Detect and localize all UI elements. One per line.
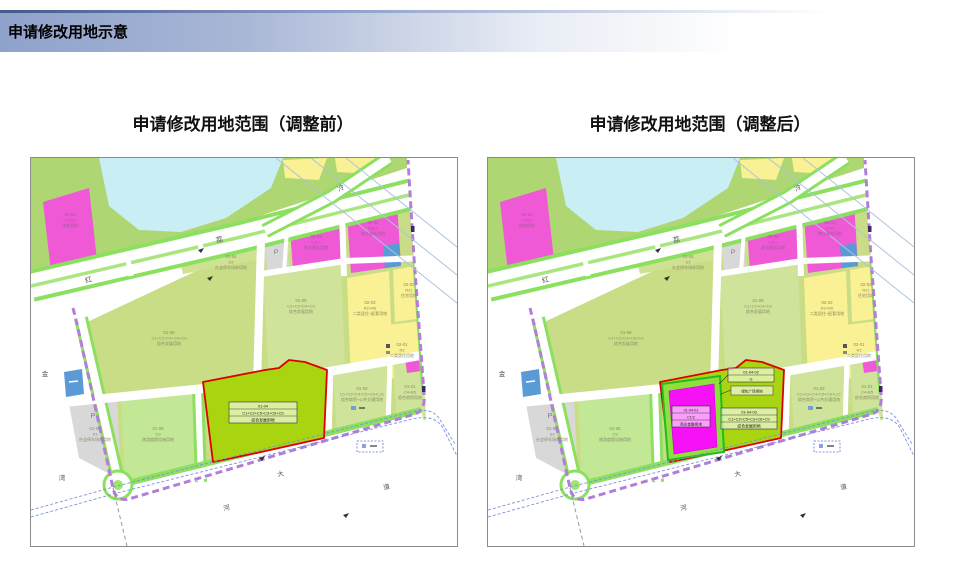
- parcel-label-01-09: 01-09: [753, 298, 765, 303]
- parcel-label-03-04: 03-04: [226, 254, 238, 259]
- blue-parcel-mark: [526, 381, 535, 382]
- minor-road-v0b: [342, 214, 344, 276]
- road-name-char: 湾: [516, 473, 523, 482]
- parcel-label-01-09: 综合发展用地: [746, 308, 770, 314]
- parcel-label-01-08: C1+C2+C4+C8+C9: [609, 335, 645, 340]
- parcel-label-02-01: 二类居住用地: [847, 352, 871, 358]
- parcel-label-01-03: 01-03: [814, 386, 826, 391]
- parcel-label-03-03: 03-03: [768, 234, 780, 239]
- minor-road-v0: [257, 240, 261, 386]
- parcel-label-01-09: C1+C2+C4+C9: [287, 303, 315, 308]
- focus-green-label-box-row: G: [749, 376, 752, 381]
- parcel-label-01-03: C1+C2+C4+C5+C9+L21: [797, 391, 842, 396]
- parcel-label-01-08: 01-08: [164, 330, 176, 335]
- parcel-label-03-02: 商业服务用地: [361, 230, 385, 236]
- parcel-label-02-02: R21: [405, 287, 413, 292]
- minor-road-v0: [714, 240, 718, 386]
- parcel-label-01-09: C1+C2+C4+C9: [744, 303, 772, 308]
- parking-letter-north: P: [274, 249, 278, 256]
- focus-green-label-box-row: 01-04-02: [743, 369, 759, 374]
- parking-letter-01-06: P: [91, 413, 96, 420]
- parcel-label-02-02: 02-02: [861, 282, 873, 287]
- parcel-label-01-06: 01-06: [547, 426, 559, 431]
- pylon-marker: [879, 386, 883, 392]
- parcel-label-01-03: C1+C2+C4+C5+C9+L21: [340, 391, 385, 396]
- facility-icon: [351, 406, 356, 410]
- parcel-label-03-02: 商业服务用地: [818, 230, 842, 236]
- parcel-label-03-03: C/IC1: [311, 239, 322, 244]
- parcel-label-01-08: 01-08: [621, 330, 633, 335]
- road-name-char: 金: [42, 369, 49, 378]
- roundabout-island: [570, 480, 580, 490]
- facility-icon: [808, 406, 813, 410]
- parcel-label-01-03: 综合商贸+公共交通用地: [798, 396, 840, 402]
- parcel-label-01-01: 综合商贸用地: [855, 394, 879, 400]
- parcel-label-02-02: R21: [862, 287, 870, 292]
- parcel-label-01-05: 01-05: [610, 426, 622, 431]
- facility-icon: [843, 344, 847, 348]
- parcel-label-01-08: 综合发展用地: [157, 340, 181, 346]
- page-title: 申请修改用地示意: [0, 13, 872, 52]
- parcel-label-04-02: C/IC2: [522, 217, 533, 222]
- parcel-label-01-05: C9: [612, 431, 618, 436]
- parcel-label-04-02: 04-02: [65, 212, 77, 217]
- pylon-marker: [868, 226, 872, 232]
- focus-green-callout-text: 绿化广场用地: [741, 389, 763, 394]
- parcel-label-02-03: 二类居住+配套用地: [353, 310, 387, 316]
- parcel-label-01-06: 01-06: [90, 426, 102, 431]
- figure-title-after: 申请修改用地范围（调整后）: [487, 110, 913, 157]
- figure-after: 申请修改用地范围（调整后） 01-04-01C1/2商业金融用地01-04-03…: [487, 110, 913, 547]
- parcel-label-03-02: C/IC1: [368, 225, 379, 230]
- focus-main-label-box-row: 01-04-03: [741, 409, 757, 414]
- parcel-label-01-05: C9: [155, 431, 161, 436]
- focus-magenta-label-box-row: C1/2: [687, 415, 695, 419]
- parcel-label-02-01: 02-01: [854, 342, 866, 347]
- focus-label-box-before: 01-04C1+C2+C5+C3+C6+C9综合发展用地: [229, 402, 297, 423]
- pylon-marker: [422, 386, 426, 392]
- parcel-label-03-04: 社会停车场库用地: [672, 264, 704, 270]
- parcel-blue-west: [521, 369, 541, 397]
- focus-label-box-before-row: 01-04: [258, 403, 269, 408]
- blue-parcel-mark: [69, 381, 78, 382]
- facility-icon: [386, 344, 390, 348]
- focus-main-label-box-row: 综合发展用地: [737, 423, 760, 428]
- parcel-label-03-03: C/IC1: [768, 239, 779, 244]
- parcel-label-02-03: R2+R6: [821, 305, 834, 310]
- parcel-label-01-08: 综合发展用地: [614, 340, 638, 346]
- parcel-label-01-06: S3: [550, 431, 556, 436]
- parcel-label-01-06: 社会停车场库用地: [79, 436, 111, 442]
- parcel-label-01-09: 综合发展用地: [289, 308, 313, 314]
- figure-before: 申请修改用地范围（调整前） 01-04C1+C2+C5+C3+C6+C9综合发展…: [30, 110, 456, 547]
- parcel-label-01-01: C4+B5: [404, 389, 417, 394]
- parcel-label-02-03: 02-03: [822, 300, 834, 305]
- parcel-label-01-09: 01-09: [296, 298, 308, 303]
- map-frame-before: 01-04C1+C2+C5+C3+C6+C9综合发展用地04-02C/IC2体育…: [30, 157, 458, 547]
- parcel-label-01-08: C1+C2+C4+C8+C9: [152, 335, 188, 340]
- pylon-marker: [411, 226, 415, 232]
- focus-label-box-before-row: 综合发展用地: [251, 417, 274, 422]
- parcel-label-03-04: 社会停车场库用地: [215, 264, 247, 270]
- header-bar: 申请修改用地示意: [0, 13, 872, 52]
- planning-map-after: 01-04-01C1/2商业金融用地01-04-03C1+C2+C5+C3+C6…: [488, 158, 914, 546]
- parcel-label-01-05: 01-05: [153, 426, 165, 431]
- roundabout-island: [113, 480, 123, 490]
- map-frame-after: 01-04-01C1/2商业金融用地01-04-03C1+C2+C5+C3+C6…: [487, 157, 915, 547]
- parcel-label-01-06: S3: [93, 431, 99, 436]
- parcel-label-03-04: S3: [229, 259, 235, 264]
- focus-main-label-box-row: C1+C2+C5+C3+C6+C9: [728, 416, 769, 421]
- parcel-label-01-03: 01-03: [357, 386, 369, 391]
- minor-road-v2: [785, 368, 787, 440]
- parcel-label-04-02: 体育用地: [519, 222, 535, 228]
- focus-magenta-label-box-row: 01-04-01: [684, 408, 699, 412]
- parcel-label-03-02: 03-02: [368, 220, 380, 225]
- parcel-label-03-03: 商业服务用地: [761, 244, 785, 250]
- parcel-blue-west: [64, 369, 84, 397]
- focus-magenta-label-box: 01-04-01C1/2商业金融用地: [672, 406, 710, 427]
- parcel-label-03-03: 商业服务用地: [304, 244, 328, 250]
- parcel-label-01-01: 01-01: [405, 384, 417, 389]
- parcel-label-03-04: S3: [686, 259, 692, 264]
- parcel-label-03-04: 03-04: [683, 254, 695, 259]
- parcel-label-04-02: 04-02: [522, 212, 534, 217]
- parcel-label-02-03: 02-03: [365, 300, 377, 305]
- minor-road-v0b: [799, 214, 801, 276]
- parking-letter-north: P: [731, 249, 735, 256]
- bus-stop-glyph: [362, 444, 366, 448]
- focus-main-label-box: 01-04-03C1+C2+C5+C3+C6+C9综合发展用地: [721, 408, 777, 429]
- parcel-label-02-03: 二类居住+配套用地: [810, 310, 844, 316]
- parcel-label-03-03: 03-03: [311, 234, 323, 239]
- parcel-label-01-05: 旅游度假设施用地: [142, 436, 174, 442]
- parcel-label-02-01: R2: [399, 347, 405, 352]
- planning-map-before: 01-04C1+C2+C5+C3+C6+C9综合发展用地04-02C/IC2体育…: [31, 158, 457, 546]
- parcel-label-02-02: 02-02: [404, 282, 416, 287]
- parcel-label-02-01: 二类居住用地: [390, 352, 414, 358]
- parcel-label-04-02: 体育用地: [62, 222, 78, 228]
- parcel-label-02-02: 住宅用地: [401, 292, 417, 298]
- parcel-label-03-02: C/IC1: [825, 225, 836, 230]
- parcel-label-02-01: R2: [856, 347, 862, 352]
- parcel-label-01-01: C4+B5: [861, 389, 874, 394]
- parcel-label-03-02: 03-02: [825, 220, 837, 225]
- parcel-label-01-01: 01-01: [862, 384, 874, 389]
- parking-letter-01-06: P: [548, 413, 553, 420]
- parcel-label-04-02: C/IC2: [65, 217, 76, 222]
- parcel-label-01-06: 社会停车场库用地: [536, 436, 568, 442]
- parcel-label-01-03: 综合商贸+公共交通用地: [341, 396, 383, 402]
- focus-magenta-label-box-row: 商业金融用地: [680, 421, 702, 426]
- minor-road-v2: [328, 368, 330, 440]
- parcel-label-02-03: R2+R6: [364, 305, 377, 310]
- parcel-label-02-01: 02-01: [397, 342, 409, 347]
- bus-stop-glyph: [819, 444, 823, 448]
- figure-title-before: 申请修改用地范围（调整前）: [30, 110, 456, 157]
- focus-green-callout-box: 绿化广场用地: [731, 386, 773, 395]
- road-name-char: 金: [499, 369, 506, 378]
- parcel-label-01-01: 综合商贸用地: [398, 394, 422, 400]
- parcel-label-01-05: 旅游度假设施用地: [599, 436, 631, 442]
- parcel-label-02-02: 住宅用地: [858, 292, 874, 298]
- focus-label-box-before-row: C1+C2+C5+C3+C6+C9: [242, 410, 283, 415]
- road-name-char: 湾: [59, 473, 66, 482]
- focus-green-label-box: 01-04-02G: [728, 368, 774, 382]
